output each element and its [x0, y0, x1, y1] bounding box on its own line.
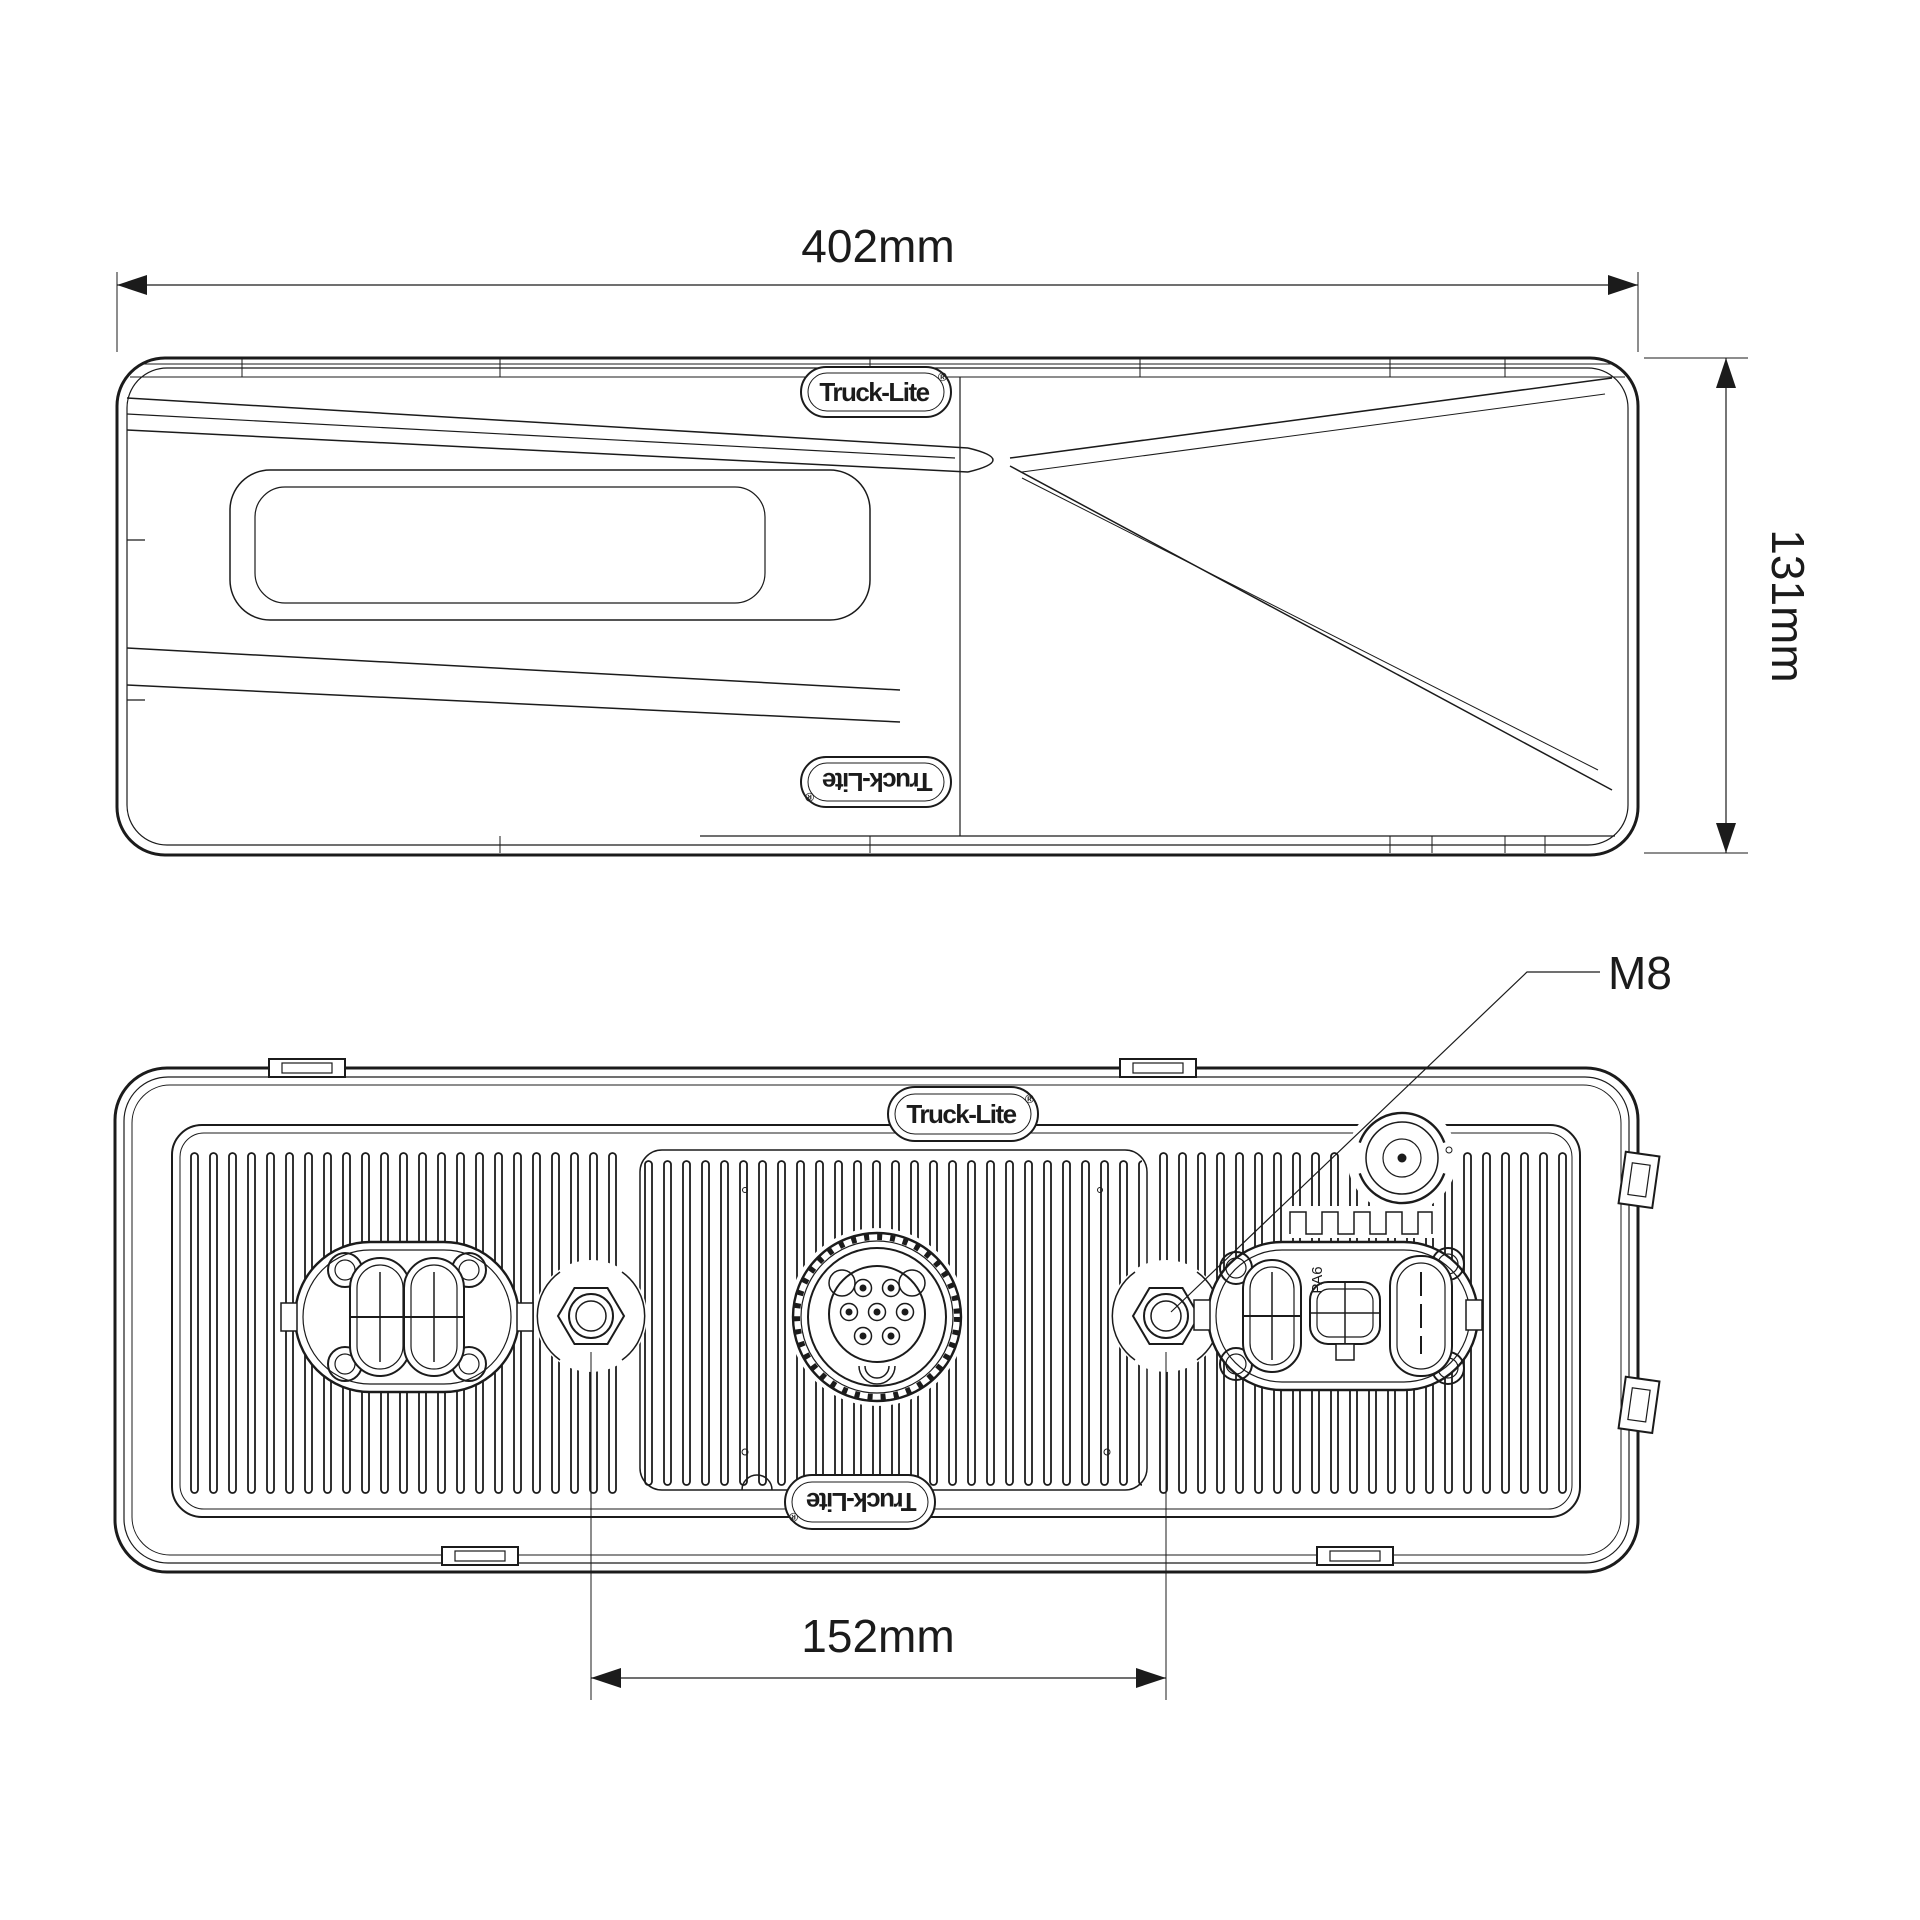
clip-bottom-right: [1317, 1547, 1393, 1565]
clip-side-lower: [1619, 1377, 1660, 1433]
logo-reg-mark: ®: [805, 790, 814, 804]
side-tab-right: [1466, 1300, 1482, 1330]
rear-view: PA6 Truck-Lite: [115, 1059, 1659, 1572]
clip-top-right: [1120, 1059, 1196, 1077]
side-tab-right: [517, 1303, 533, 1331]
logo-reg-mark: ®: [1025, 1092, 1034, 1106]
clip-top-left: [269, 1059, 345, 1077]
castellated-strip: [1286, 1206, 1436, 1238]
truck-lite-logo-rear-lower: Truck-Lite ®: [785, 1475, 935, 1529]
logo-text: Truck-Lite: [822, 767, 932, 797]
logo-text: Truck-Lite: [906, 1099, 1016, 1129]
lens-pocket-inner: [255, 487, 765, 603]
connector-7pin-round: [788, 1228, 966, 1406]
truck-lite-logo-rear-upper: Truck-Lite ®: [888, 1087, 1038, 1141]
connector-3pin: PA6: [1194, 1242, 1482, 1390]
height-dimension-label: 131mm: [1762, 529, 1814, 682]
side-tab-left: [281, 1303, 297, 1331]
clip-bottom-left: [442, 1547, 518, 1565]
width-dimension-label: 402mm: [801, 220, 954, 272]
stud-thread-label: M8: [1608, 947, 1672, 999]
logo-text: Truck-Lite: [819, 377, 929, 407]
logo-reg-mark: ®: [789, 1510, 798, 1524]
truck-lite-logo-top-view-upper: Truck-Lite ®: [801, 367, 951, 417]
technical-drawing: Truck-Lite ® Truck-Lite ® 402mm 131mm: [0, 0, 1920, 1920]
top-view: Truck-Lite ® Truck-Lite ®: [117, 358, 1638, 855]
side-tab-left: [1194, 1300, 1210, 1330]
drawing-sheet: Truck-Lite ® Truck-Lite ® 402mm 131mm: [0, 0, 1920, 1920]
height-dimension: 131mm: [1644, 358, 1814, 853]
stud-spacing-label: 152mm: [801, 1610, 954, 1662]
truck-lite-logo-top-view-lower: Truck-Lite ®: [801, 757, 951, 807]
logo-text: Truck-Lite: [806, 1487, 916, 1517]
clip-side-upper: [1619, 1152, 1660, 1208]
material-marking: PA6: [1309, 1266, 1326, 1293]
width-dimension: 402mm: [117, 220, 1638, 352]
lens-pocket-outer: [230, 470, 870, 620]
connector-2pin: [281, 1242, 533, 1392]
breather-grommet: [1347, 1103, 1457, 1213]
logo-reg-mark: ®: [938, 370, 947, 384]
